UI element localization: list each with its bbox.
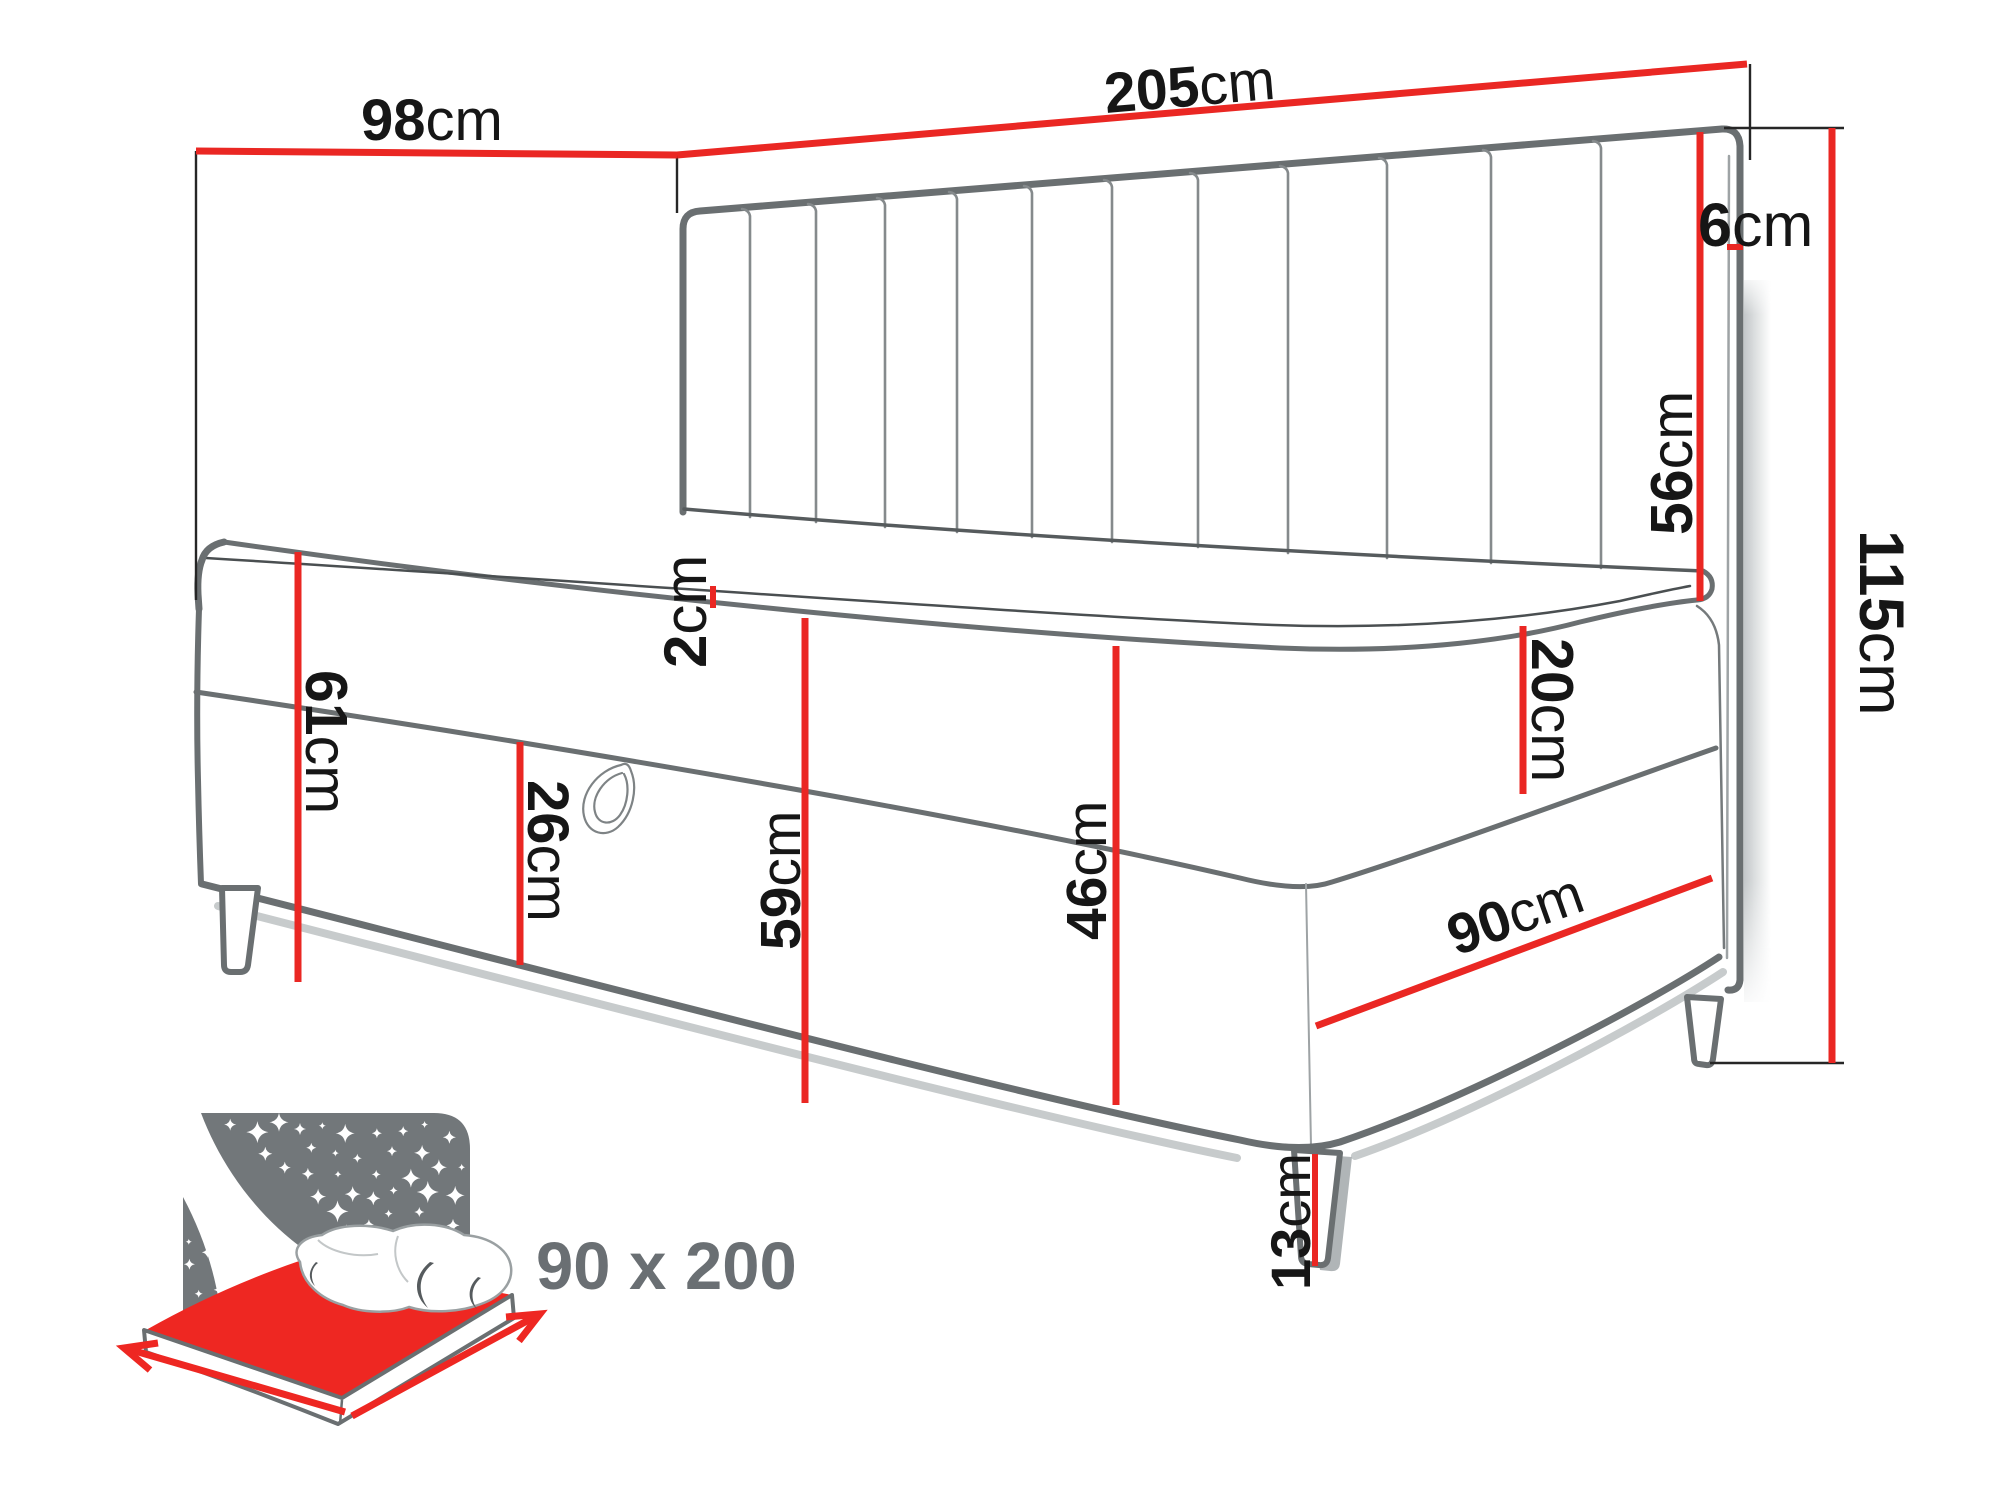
svg-text:205cm: 205cm	[1102, 48, 1278, 126]
svg-text:115cm: 115cm	[1846, 530, 1916, 716]
svg-text:20cm: 20cm	[1519, 638, 1585, 782]
svg-text:26cm: 26cm	[515, 780, 580, 922]
svg-text:56cm: 56cm	[1639, 391, 1705, 535]
svg-text:90 x 200: 90 x 200	[536, 1229, 797, 1304]
svg-text:59cm: 59cm	[749, 811, 813, 950]
svg-text:61cm: 61cm	[293, 670, 359, 814]
svg-text:2cm: 2cm	[652, 555, 719, 668]
svg-text:6cm: 6cm	[1698, 191, 1813, 259]
svg-text:98cm: 98cm	[361, 88, 503, 153]
svg-text:13cm: 13cm	[1259, 1153, 1322, 1290]
svg-text:46cm: 46cm	[1055, 801, 1119, 940]
